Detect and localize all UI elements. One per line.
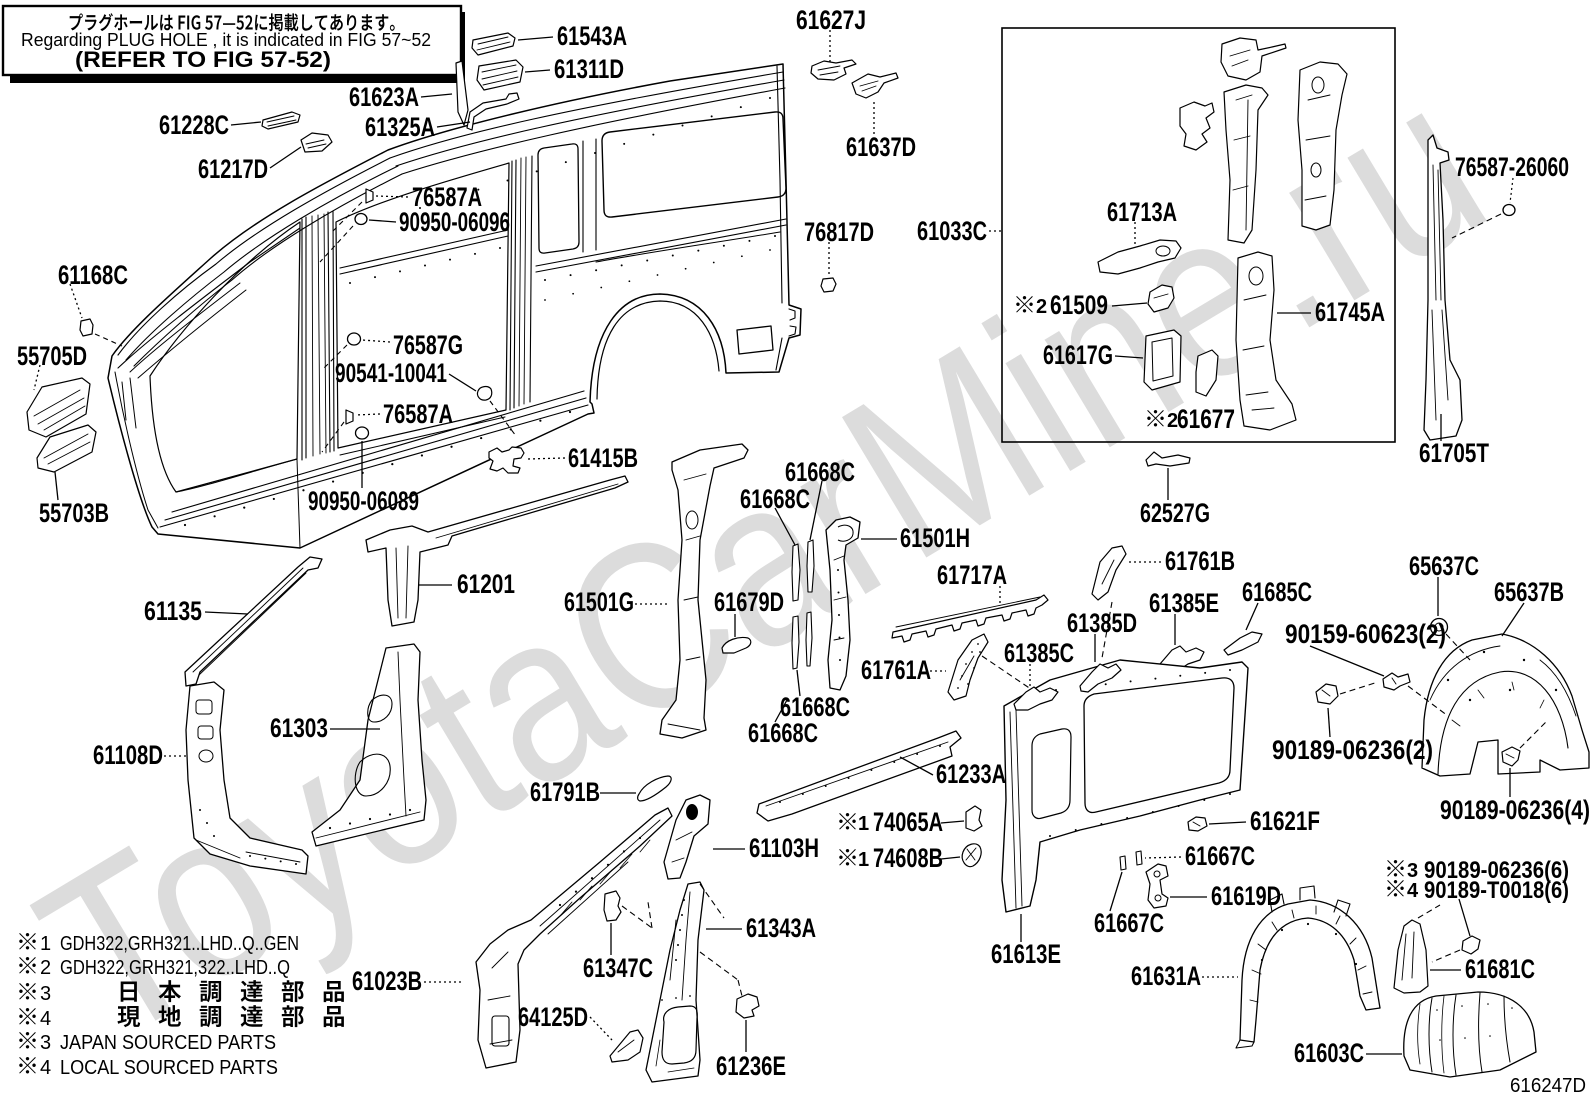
svg-text:61108D: 61108D (93, 740, 163, 770)
svg-text:61713A: 61713A (1107, 197, 1177, 227)
svg-text:61717A: 61717A (937, 560, 1007, 590)
svg-text:61745A: 61745A (1315, 297, 1385, 327)
svg-text:61627J: 61627J (796, 5, 866, 35)
svg-text:61668C: 61668C (785, 457, 855, 487)
svg-text:61347C: 61347C (583, 953, 653, 983)
svg-text:61233A: 61233A (936, 759, 1006, 789)
svg-text:4: 4 (1407, 880, 1419, 902)
svg-text:90189-06236(4): 90189-06236(4) (1440, 795, 1590, 825)
svg-text:61217D: 61217D (198, 154, 268, 184)
svg-text:1: 1 (40, 933, 51, 955)
svg-text:61135: 61135 (144, 596, 202, 626)
svg-text:61791B: 61791B (530, 777, 600, 807)
svg-text:61677: 61677 (1177, 404, 1235, 434)
svg-text:61623A: 61623A (349, 82, 419, 112)
svg-text:62527G: 62527G (1140, 498, 1210, 528)
svg-text:61761B: 61761B (1165, 546, 1235, 576)
svg-text:1: 1 (858, 849, 869, 871)
svg-text:90189-06236(2): 90189-06236(2) (1272, 735, 1433, 765)
svg-text:61667C: 61667C (1185, 841, 1255, 871)
svg-text:3: 3 (40, 983, 51, 1005)
svg-text:61325A: 61325A (365, 112, 435, 142)
svg-text:61228C: 61228C (159, 110, 229, 140)
svg-text:90159-60623(2): 90159-60623(2) (1285, 619, 1446, 649)
svg-text:55703B: 55703B (39, 498, 109, 528)
svg-text:61385C: 61385C (1004, 638, 1074, 668)
svg-text:61631A: 61631A (1131, 961, 1201, 991)
svg-text:55705D: 55705D (17, 341, 87, 371)
svg-text:61415B: 61415B (568, 443, 638, 473)
svg-text:65637B: 65637B (1494, 577, 1564, 607)
svg-text:61637D: 61637D (846, 132, 916, 162)
svg-text:61168C: 61168C (58, 260, 128, 290)
svg-text:90189-T0018(6): 90189-T0018(6) (1424, 877, 1569, 904)
svg-text:2: 2 (1167, 410, 1178, 432)
svg-text:61023B: 61023B (352, 966, 422, 996)
svg-text:616247D: 616247D (1510, 1075, 1586, 1097)
svg-text:61603C: 61603C (1294, 1038, 1364, 1068)
svg-text:61543A: 61543A (557, 21, 627, 51)
svg-text:61103H: 61103H (749, 833, 819, 863)
svg-text:2: 2 (1036, 296, 1047, 318)
svg-text:76587A: 76587A (383, 399, 453, 429)
svg-text:61236E: 61236E (716, 1051, 786, 1081)
svg-text:61705T: 61705T (1419, 438, 1489, 468)
svg-text:61761A: 61761A (861, 655, 931, 685)
svg-text:61617G: 61617G (1043, 340, 1113, 370)
svg-text:61681C: 61681C (1465, 954, 1535, 984)
svg-text:3: 3 (1407, 860, 1418, 882)
svg-text:90950-06096: 90950-06096 (399, 207, 510, 237)
svg-text:61311D: 61311D (554, 54, 624, 84)
svg-text:61668C: 61668C (748, 718, 818, 748)
svg-text:76817D: 76817D (804, 217, 874, 247)
svg-text:65637C: 65637C (1409, 551, 1479, 581)
svg-text:61303: 61303 (270, 713, 328, 743)
svg-text:61668C: 61668C (740, 484, 810, 514)
svg-text:3: 3 (40, 1032, 51, 1054)
svg-text:61501H: 61501H (900, 523, 970, 553)
svg-text:90950-06089: 90950-06089 (308, 486, 419, 516)
svg-text:74608B: 74608B (873, 843, 943, 873)
svg-text:LOCAL SOURCED PARTS: LOCAL SOURCED PARTS (60, 1057, 278, 1079)
svg-text:JAPAN SOURCED PARTS: JAPAN SOURCED PARTS (60, 1032, 276, 1054)
svg-text:76587G: 76587G (393, 330, 463, 360)
svg-text:61679D: 61679D (714, 587, 784, 617)
svg-text:1: 1 (858, 813, 869, 835)
svg-text:64125D: 64125D (518, 1002, 588, 1032)
svg-text:61385E: 61385E (1149, 588, 1219, 618)
svg-text:61685C: 61685C (1242, 577, 1312, 607)
svg-text:61385D: 61385D (1067, 608, 1137, 638)
svg-text:61619D: 61619D (1211, 881, 1281, 911)
svg-text:GDH322,GRH321..LHD..Q..GEN: GDH322,GRH321..LHD..Q..GEN (60, 933, 299, 955)
svg-text:61613E: 61613E (991, 939, 1061, 969)
svg-text:GDH322,GRH321,322..LHD..Q: GDH322,GRH321,322..LHD..Q (60, 957, 290, 979)
svg-text:74065A: 74065A (873, 807, 943, 837)
svg-text:61501G: 61501G (564, 587, 634, 617)
svg-text:4: 4 (40, 1008, 51, 1030)
svg-text:2: 2 (40, 957, 51, 979)
svg-text:61509: 61509 (1050, 290, 1108, 320)
svg-text:61667C: 61667C (1094, 908, 1164, 938)
svg-text:90541-10041: 90541-10041 (335, 358, 447, 388)
svg-text:(REFER TO FIG 57-52): (REFER TO FIG 57-52) (75, 47, 331, 72)
svg-text:4: 4 (40, 1057, 51, 1079)
svg-text:61343A: 61343A (746, 913, 816, 943)
svg-text:61201: 61201 (457, 569, 515, 599)
svg-text:61621F: 61621F (1250, 806, 1320, 836)
svg-text:61033C: 61033C (917, 216, 987, 246)
svg-text:76587-26060: 76587-26060 (1455, 152, 1569, 182)
